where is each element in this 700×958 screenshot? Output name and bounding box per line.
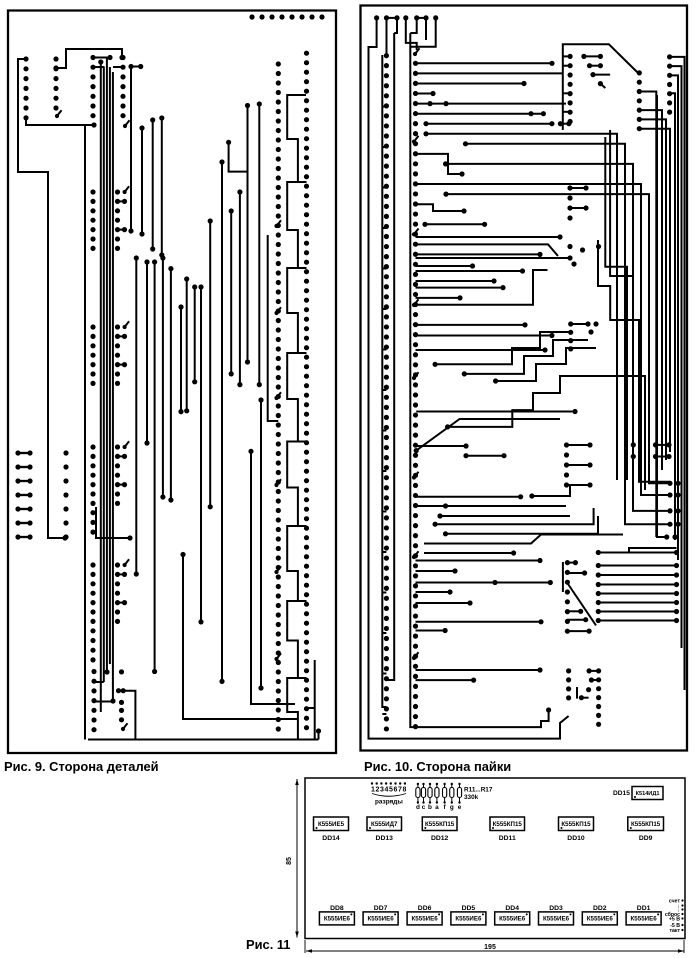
svg-text:К555ИЕ6: К555ИЕ6 (455, 916, 482, 923)
svg-text:195: 195 (484, 944, 496, 951)
svg-text:330k: 330k (464, 794, 479, 801)
svg-text:g: g (450, 804, 454, 811)
svg-text:К555ИЕ6: К555ИЕ6 (499, 916, 526, 923)
svg-text:DD14: DD14 (322, 835, 340, 842)
svg-text:85: 85 (286, 857, 293, 865)
svg-text:DD2: DD2 (593, 905, 607, 912)
svg-text:12345678: 12345678 (371, 787, 407, 794)
svg-text:К555КП15: К555КП15 (561, 821, 591, 828)
svg-text:Рис. 9. Сторона деталей: Рис. 9. Сторона деталей (4, 759, 159, 774)
svg-text:DD11: DD11 (499, 835, 516, 842)
svg-text:+5 В: +5 В (669, 917, 680, 923)
svg-text:DD12: DD12 (431, 835, 449, 842)
svg-text:DD4: DD4 (505, 905, 519, 912)
svg-text:c: c (422, 804, 426, 811)
svg-text:Рис. 11: Рис. 11 (246, 937, 290, 952)
svg-text:К514ИД1: К514ИД1 (636, 791, 660, 797)
svg-text:DD1: DD1 (637, 905, 651, 912)
svg-text:DD10: DD10 (567, 835, 585, 842)
svg-text:К555КП15: К555КП15 (631, 821, 661, 828)
svg-text:R11...R17: R11...R17 (464, 787, 493, 794)
svg-text:К555ИЕ6: К555ИЕ6 (587, 916, 614, 923)
svg-text:DD6: DD6 (418, 905, 432, 912)
svg-text:К555КП15: К555КП15 (493, 821, 523, 828)
svg-text:DD5: DD5 (462, 905, 476, 912)
svg-text:DD15: DD15 (613, 790, 630, 797)
svg-text:К555ИЕ5: К555ИЕ5 (318, 821, 345, 828)
svg-text:К555ИЕ6: К555ИЕ6 (631, 916, 658, 923)
svg-text:разряды: разряды (375, 799, 403, 806)
svg-text:К555КП15: К555КП15 (425, 821, 455, 828)
svg-text:e: e (458, 804, 462, 811)
svg-text:DD8: DD8 (330, 905, 344, 912)
svg-text:DD7: DD7 (374, 905, 388, 912)
svg-text:К555ИД7: К555ИД7 (371, 821, 398, 828)
svg-text:Рис. 10. Сторона пайки: Рис. 10. Сторона пайки (364, 759, 511, 774)
svg-text:d: d (416, 804, 420, 811)
svg-text:К555ИЕ6: К555ИЕ6 (324, 916, 351, 923)
svg-text:К555ИЕ6: К555ИЕ6 (368, 916, 395, 923)
svg-text:К555ИЕ6: К555ИЕ6 (412, 916, 439, 923)
svg-text:DD9: DD9 (639, 835, 653, 842)
svg-text:DD3: DD3 (549, 905, 563, 912)
svg-text:a: a (435, 804, 439, 811)
svg-text:такт: такт (669, 928, 680, 934)
svg-text:b: b (428, 804, 432, 811)
svg-text:DD13: DD13 (376, 835, 394, 842)
svg-text:К555ИЕ6: К555ИЕ6 (543, 916, 570, 923)
